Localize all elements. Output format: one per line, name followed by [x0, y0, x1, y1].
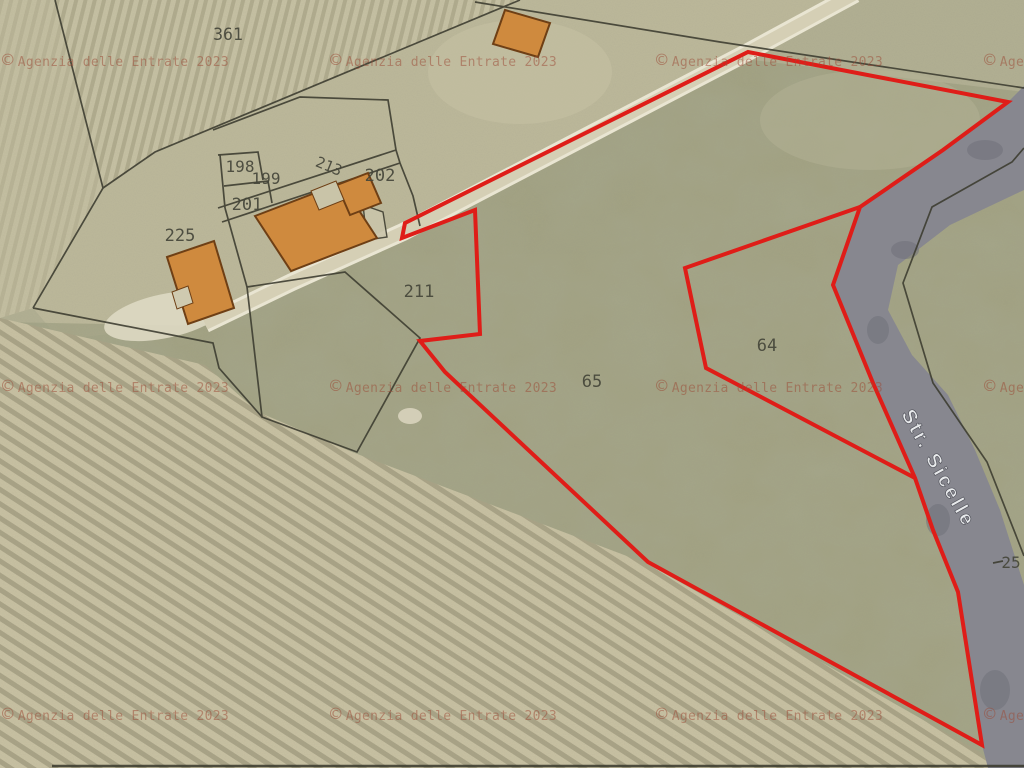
copyright-icon: ©: [656, 375, 668, 397]
parcel-label-202: 202: [365, 166, 396, 186]
parcel-label-201: 201: [232, 195, 263, 215]
watermark-text: Agenzia delle Entrate 2023: [1000, 381, 1024, 396]
parcel-label-361: 361: [213, 25, 243, 44]
copyright-icon: ©: [2, 703, 14, 725]
parcel-label-198: 198: [226, 157, 255, 176]
copyright-icon: ©: [2, 375, 14, 397]
watermark-text: Agenzia delle Entrate 2023: [18, 55, 229, 70]
parcel-label-65: 65: [582, 372, 602, 392]
cadastral-map-viewport[interactable]: 361198199201213202225211656425 ©Agenzia …: [0, 0, 1024, 768]
copyright-icon: ©: [330, 375, 342, 397]
copyright-icon: ©: [984, 375, 996, 397]
parcel-label-211: 211: [404, 282, 435, 302]
watermark-text: Agenzia delle Entrate 2023: [18, 381, 229, 396]
watermark-text: Agenzia delle Entrate 2023: [346, 55, 557, 70]
copyright-icon: ©: [656, 703, 668, 725]
parcel-label-225: 225: [165, 226, 196, 246]
parcel-label-64: 64: [757, 336, 777, 356]
copyright-icon: ©: [656, 49, 668, 71]
copyright-icon: ©: [330, 49, 342, 71]
copyright-icon: ©: [330, 703, 342, 725]
watermark-text: Agenzia delle Entrate 2023: [1000, 55, 1024, 70]
watermark-text: Agenzia delle Entrate 2023: [672, 381, 883, 396]
parcel-label-199: 199: [252, 169, 281, 188]
copyright-icon: ©: [984, 703, 996, 725]
cadastral-map[interactable]: 361198199201213202225211656425 ©Agenzia …: [0, 0, 1024, 768]
watermark-text: Agenzia delle Entrate 2023: [346, 709, 557, 724]
watermark-text: Agenzia delle Entrate 2023: [18, 709, 229, 724]
copyright-icon: ©: [984, 49, 996, 71]
parcel-label-25: 25: [1001, 553, 1020, 572]
bare-ground-spot: [398, 408, 422, 424]
watermark-text: Agenzia delle Entrate 2023: [672, 55, 883, 70]
copyright-icon: ©: [2, 49, 14, 71]
watermark-text: Agenzia delle Entrate 2023: [672, 709, 883, 724]
watermark-text: Agenzia delle Entrate 2023: [1000, 709, 1024, 724]
watermark-text: Agenzia delle Entrate 2023: [346, 381, 557, 396]
